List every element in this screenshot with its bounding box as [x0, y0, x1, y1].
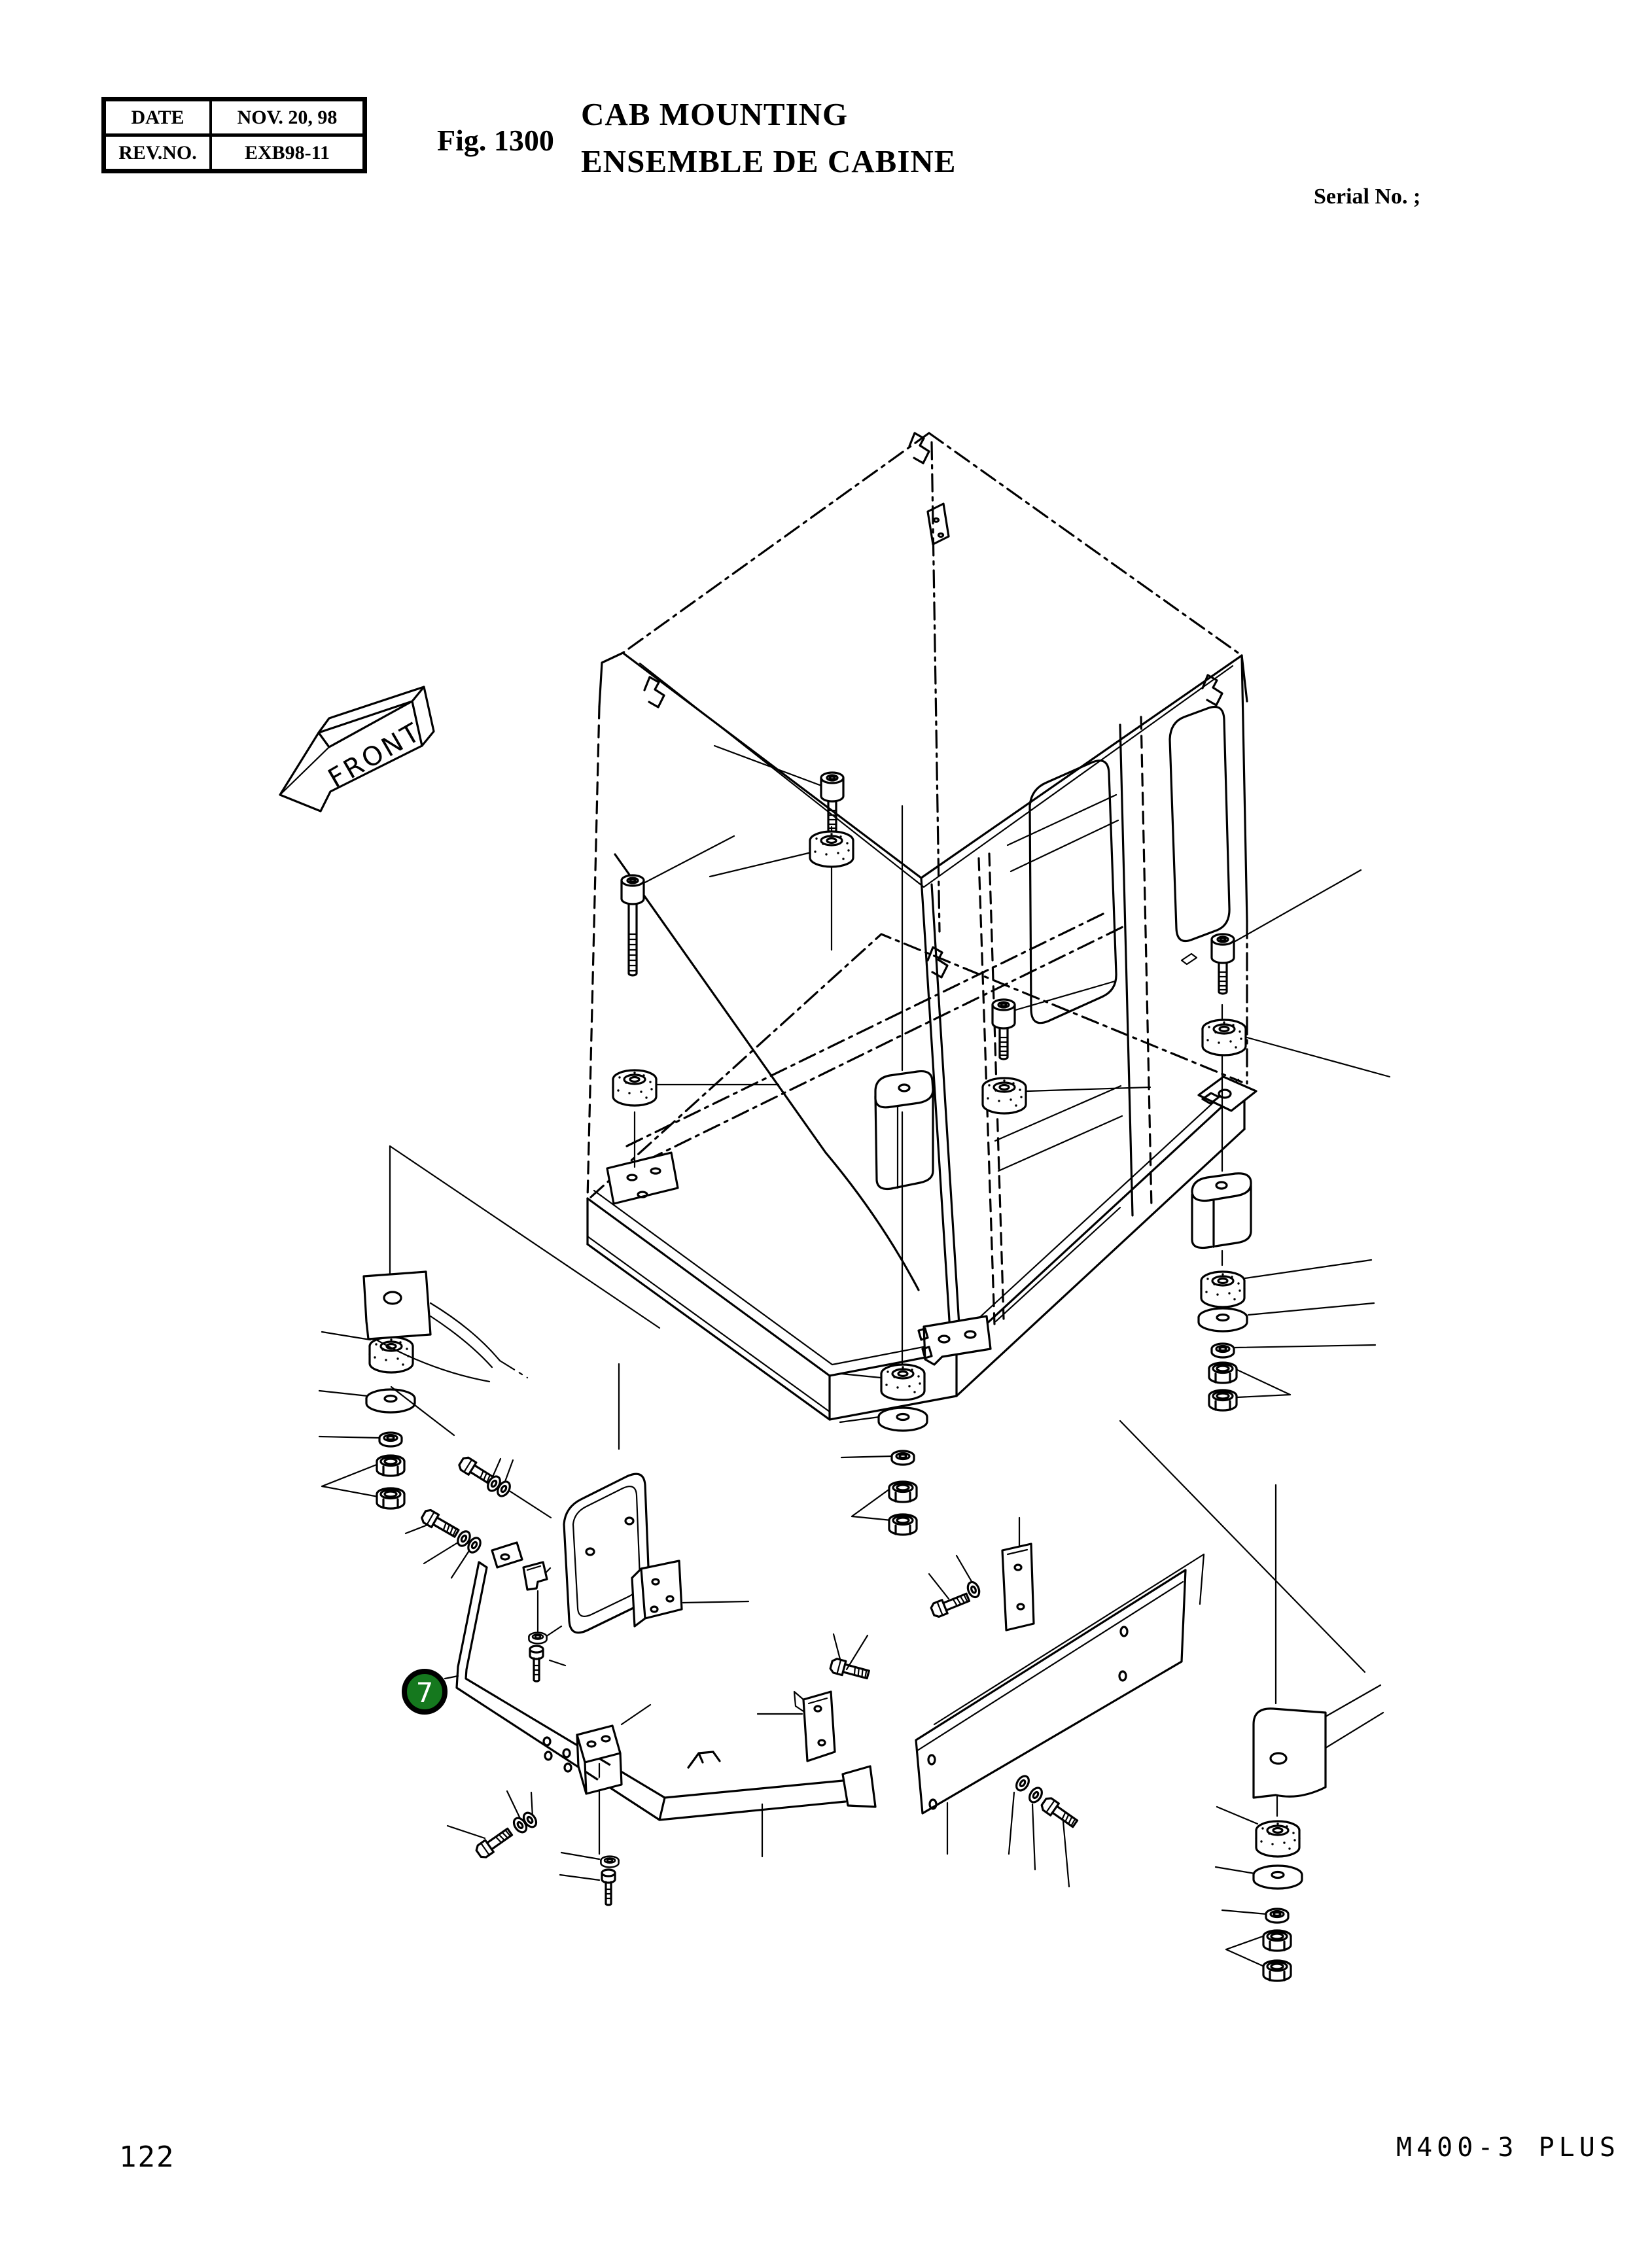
cab-window — [1030, 761, 1116, 1023]
rubber-mount — [1256, 1821, 1299, 1857]
front-arrow: FRONT — [280, 687, 434, 811]
socket-bolt — [821, 773, 843, 832]
mount-stack-left — [366, 1337, 415, 1509]
cab-walls — [588, 442, 1247, 1331]
part-balloon-7: 7 — [404, 1671, 458, 1712]
hex-nut — [1209, 1363, 1237, 1383]
flat-washer — [1199, 1308, 1247, 1331]
hex-nut — [377, 1488, 404, 1509]
u-channel-spacer — [1192, 1174, 1251, 1248]
hex-nut — [1263, 1961, 1291, 1981]
hex-bolt — [930, 1591, 970, 1618]
clamp-bracket — [523, 1562, 547, 1590]
panel-bracket — [930, 1544, 1034, 1630]
hex-bolt — [830, 1658, 870, 1681]
bar-clamp — [688, 1752, 720, 1768]
parts-diagram: FRONT 7 — [0, 0, 1652, 2251]
panel-fasteners — [1014, 1774, 1080, 1830]
bar-bracket — [577, 1726, 622, 1794]
hex-nut — [377, 1456, 404, 1476]
lock-washer — [1212, 1344, 1234, 1357]
hex-bolt — [474, 1826, 514, 1859]
rubber-mount — [613, 1070, 656, 1106]
lock-washer — [379, 1433, 402, 1446]
flat-washer — [1254, 1866, 1302, 1889]
socket-bolt — [1212, 934, 1234, 994]
square-spacer — [875, 1072, 933, 1189]
hex-nut — [889, 1514, 917, 1535]
balloon-number: 7 — [416, 1677, 434, 1709]
manual-page: DATE NOV. 20, 98 REV.NO. EXB98-11 Fig. 1… — [0, 0, 1652, 2251]
angle-bracket — [632, 1561, 682, 1626]
bar-end-plate — [843, 1766, 875, 1807]
support-bracket — [794, 1658, 870, 1761]
roof-hook-icon — [909, 433, 929, 463]
spring-washer — [1027, 1786, 1044, 1805]
floor-bracket-left — [607, 1153, 678, 1204]
chassis-arm — [1254, 1709, 1326, 1798]
rubber-mount — [983, 1078, 1026, 1113]
mount-stack-center — [879, 1365, 927, 1535]
rubber-mount — [881, 1365, 924, 1400]
flat-washer — [879, 1408, 927, 1431]
rubber-mount — [1201, 1272, 1244, 1307]
model-label: M400-3 PLUS — [1396, 2133, 1620, 2163]
flat-washer — [366, 1389, 415, 1412]
hex-nut — [1209, 1390, 1237, 1410]
lock-washer — [529, 1633, 546, 1644]
subframe-bar — [420, 1456, 875, 1905]
mount-stack-right — [1199, 1272, 1247, 1410]
lock-washer — [601, 1857, 618, 1868]
hex-nut — [889, 1482, 917, 1502]
hex-nut — [1263, 1930, 1291, 1951]
mount-stack-far-right — [1254, 1685, 1383, 1981]
spring-washer — [1014, 1774, 1031, 1793]
hex-bolt — [1040, 1796, 1079, 1830]
roof-plate — [928, 504, 949, 544]
rubber-mount — [810, 831, 853, 867]
lock-washer — [1266, 1909, 1288, 1923]
cab-frame — [588, 433, 1256, 1420]
small-bolt — [602, 1870, 615, 1905]
side-panel — [916, 1554, 1204, 1813]
lock-washer — [892, 1451, 914, 1465]
rubber-mount — [1203, 1020, 1246, 1055]
cab-window — [1170, 707, 1229, 941]
page-number: 122 — [119, 2140, 175, 2174]
cab-floor-frame — [588, 912, 1256, 1420]
hex-bolt — [420, 1508, 460, 1539]
socket-bolt — [622, 875, 644, 975]
small-bolt — [530, 1646, 543, 1681]
